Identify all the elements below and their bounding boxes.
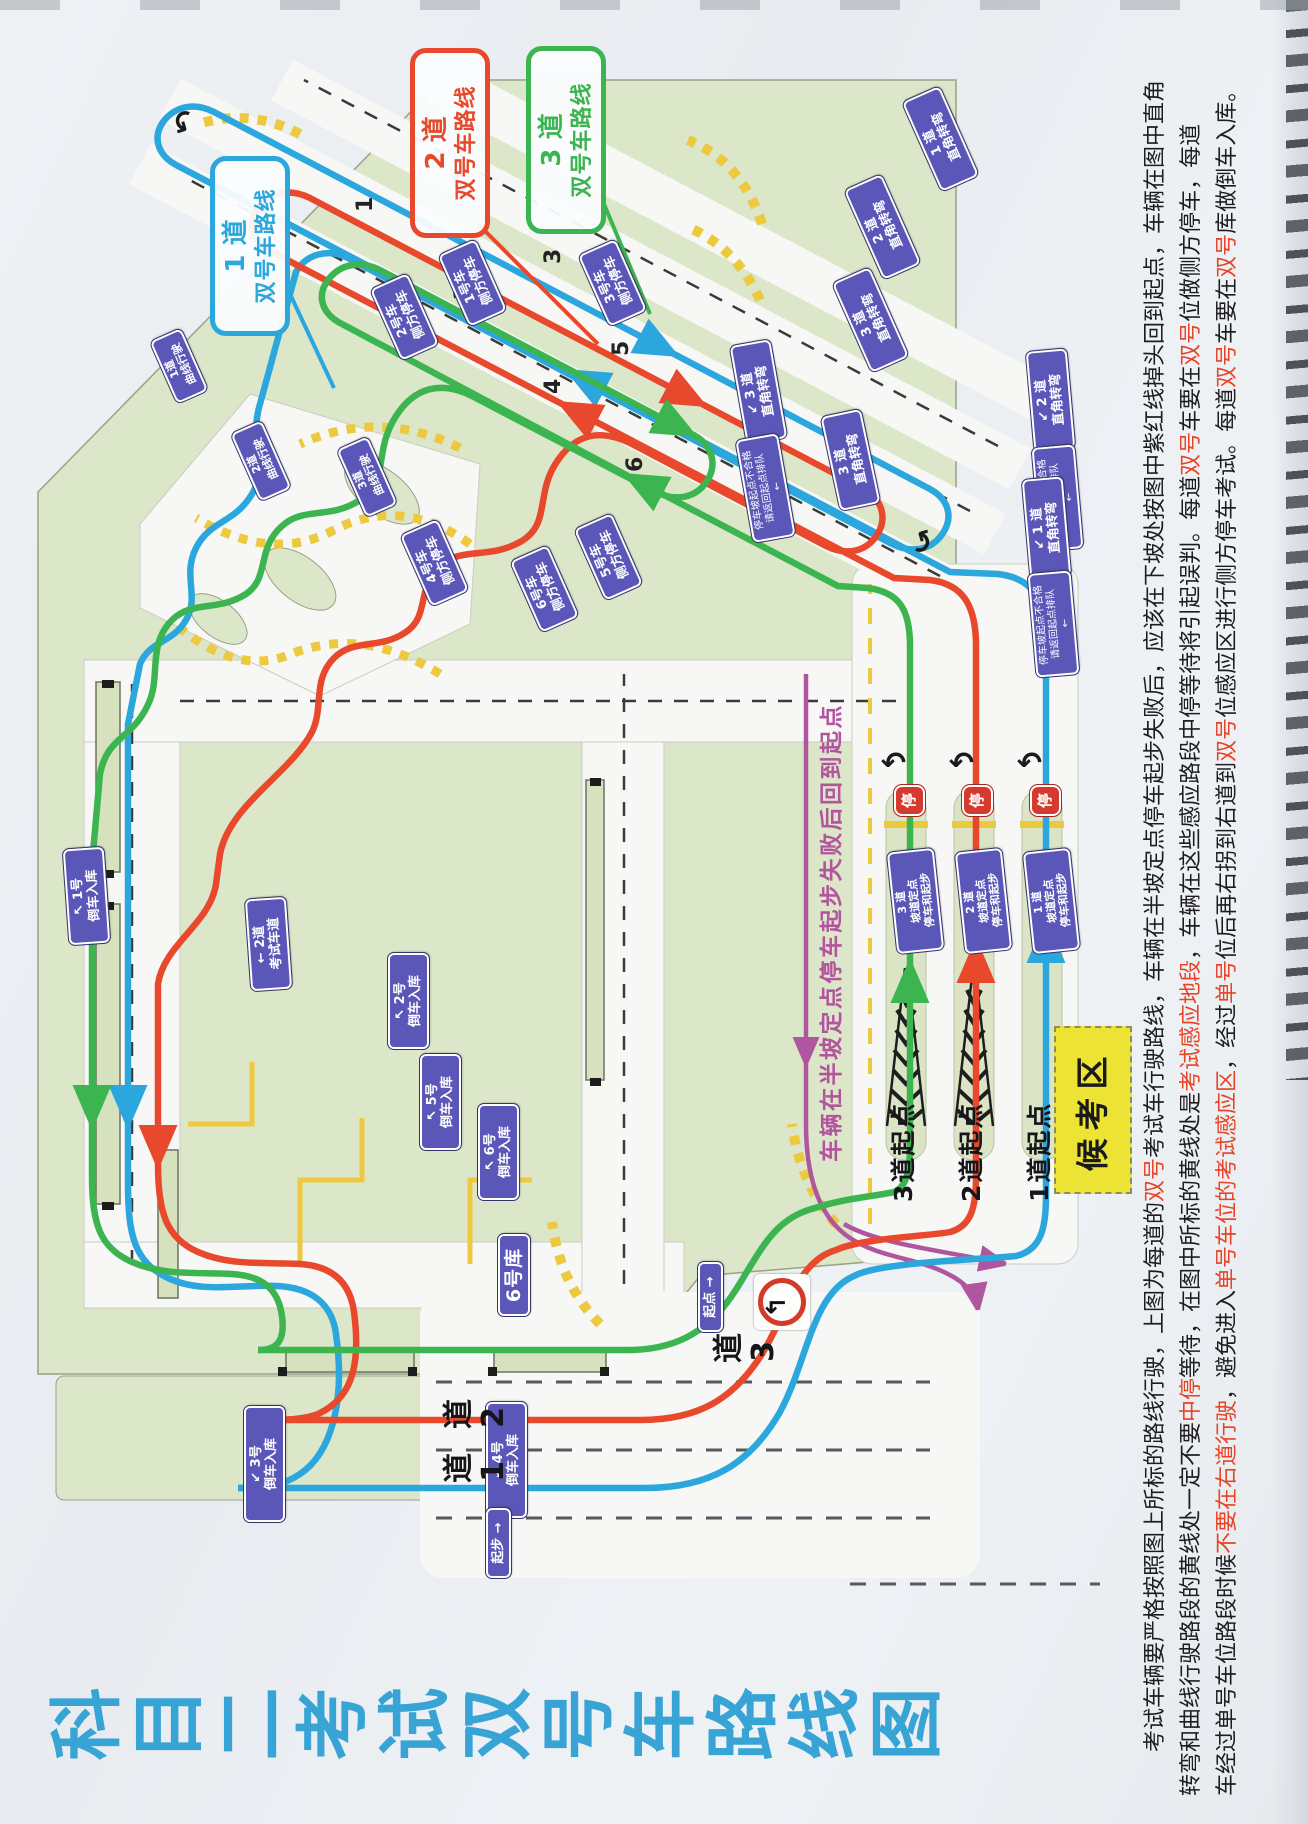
u-turn-arrow-icon: ↶ bbox=[1017, 746, 1042, 781]
label-lane3-start: 3道起点 bbox=[884, 1102, 920, 1202]
label-lane1-start: 1道起点 bbox=[1020, 1102, 1056, 1202]
waiting-area-box: 候考区 bbox=[1054, 1026, 1132, 1194]
svg-text:1: 1 bbox=[353, 197, 378, 212]
landscape-layer: 1 2 3 4 5 6 科目二考试双号车路线图 1 道 双号车路线 2 道 双号… bbox=[0, 0, 1308, 1824]
label-lane2-start: 2道起点 bbox=[952, 1102, 988, 1202]
sign-lane2-right-angle-arrow: ↙ 2 道直角转弯 bbox=[1026, 348, 1075, 451]
lane-marker-1: 道1 bbox=[442, 1450, 515, 1494]
lane-marker-3: 道3 bbox=[712, 1330, 785, 1374]
legend-lane1-label: 双号车路线 bbox=[253, 171, 281, 321]
stop-sign-lane1: 停 bbox=[1030, 785, 1061, 816]
scan-edge-shadow bbox=[0, 0, 1308, 10]
scanned-course-map: 1 2 3 4 5 6 科目二考试双号车路线图 1 道 双号车路线 2 道 双号… bbox=[0, 0, 1308, 1824]
legend-lane1-number: 1 道 bbox=[220, 171, 253, 321]
svg-text:5: 5 bbox=[609, 341, 634, 356]
svg-text:6: 6 bbox=[623, 457, 648, 472]
legend-lane3-number: 3 道 bbox=[536, 61, 569, 219]
sign-exam-lane2: ← 2道考试车道 bbox=[245, 897, 292, 992]
sign-garage-5: ↖ 5号倒车入库 bbox=[420, 1054, 461, 1150]
sign-garage-6: ↖ 6号倒车入库 bbox=[478, 1104, 519, 1200]
sign-garage-2: ↖ 2号倒车入库 bbox=[388, 953, 429, 1049]
instructions-line-2: 转弯和曲线行驶路段的黄线处一定不要中停等待，在图中所标的黄线处是考试感应地段，车… bbox=[1174, 10, 1210, 1796]
instructions-paragraph: 考试车辆要严格按照图上所标的路线行驶，上图为每道的双号考试车行驶路线，车辆在半坡… bbox=[1138, 10, 1246, 1796]
no-left-turn-sign: ↰ bbox=[754, 1274, 810, 1330]
course-map-canvas: 1 2 3 4 5 6 bbox=[0, 0, 1308, 1824]
sign-start: 起步 → bbox=[486, 1508, 511, 1578]
turn-arrow-icon: ↰ bbox=[762, 1296, 792, 1318]
legend-lane2-number: 2 道 bbox=[420, 63, 453, 223]
legend-lane3-label: 双号车路线 bbox=[569, 61, 597, 219]
stop-sign-lane2: 停 bbox=[962, 785, 993, 816]
u-turn-arrow-icon: ↶ bbox=[949, 746, 974, 781]
page-title: 科目二考试双号车路线图 bbox=[48, 1678, 988, 1784]
sign-garage-6-bay: 6号库 bbox=[498, 1234, 530, 1316]
legend-callout-lane3: 3 道 双号车路线 bbox=[526, 46, 606, 234]
instructions-line-1: 考试车辆要严格按照图上所标的路线行驶，上图为每道的双号考试车行驶路线，车辆在半坡… bbox=[1138, 10, 1174, 1796]
stop-sign-lane3: 停 bbox=[894, 785, 925, 816]
instructions-line-3: 车经过单号车位路段时候不要在右道行驶，避免进入单号车位的考试感应区，经过单号位后… bbox=[1210, 10, 1246, 1796]
sign-garage-1: ↖ 1号倒车入库 bbox=[63, 847, 110, 946]
legend-lane2-label: 双号车路线 bbox=[453, 63, 481, 223]
legend-callout-lane2: 2 道 双号车路线 bbox=[410, 48, 490, 238]
u-turn-arrow-icon: ↶ bbox=[881, 746, 906, 781]
svg-text:3: 3 bbox=[541, 249, 566, 264]
torn-paper-marks bbox=[1286, 0, 1308, 1080]
return-note: 车辆在半坡定点停车起步失败后回到起点 bbox=[812, 703, 846, 1162]
sign-start-point: 起点 → bbox=[698, 1262, 723, 1332]
legend-callout-lane1: 1 道 双号车路线 bbox=[210, 156, 290, 336]
lane-marker-2: 道2 bbox=[442, 1396, 515, 1440]
sign-lane1-right-angle-arrow: ↙ 1 道直角转弯 bbox=[1022, 476, 1071, 579]
sign-garage-3: ↙ 3号倒车入库 bbox=[244, 1406, 285, 1522]
svg-text:4: 4 bbox=[541, 379, 566, 394]
